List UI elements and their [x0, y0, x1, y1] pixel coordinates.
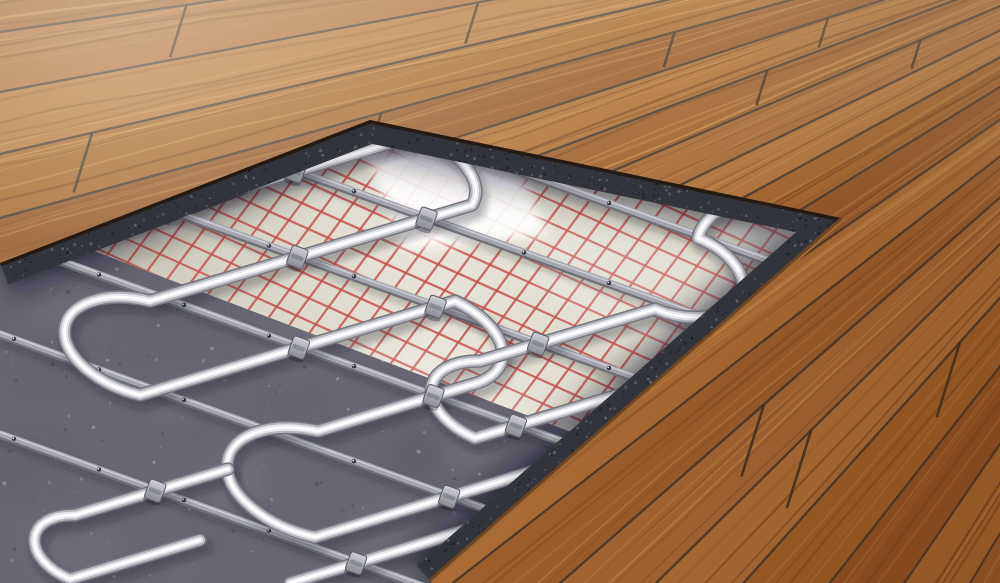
rail-screw — [352, 274, 356, 278]
underfloor-heating-3d-render: Underfloor heating system under wooden f… — [0, 0, 1000, 583]
rail-screw — [12, 437, 16, 441]
rail-screw — [607, 366, 611, 370]
rail-screw — [12, 337, 16, 341]
rail-screw — [267, 333, 271, 337]
rail-screw — [97, 272, 101, 276]
rail-screw — [607, 281, 611, 285]
rail-screw — [607, 201, 611, 205]
rail-screw — [352, 459, 356, 463]
rail-screw — [267, 243, 271, 247]
underfloor-heating-scene: Underfloor heating system under wooden f… — [0, 0, 1000, 583]
rail-screw — [352, 364, 356, 368]
rail-screw — [97, 467, 101, 471]
rail-screw — [352, 189, 356, 193]
rail-screw — [522, 250, 526, 254]
